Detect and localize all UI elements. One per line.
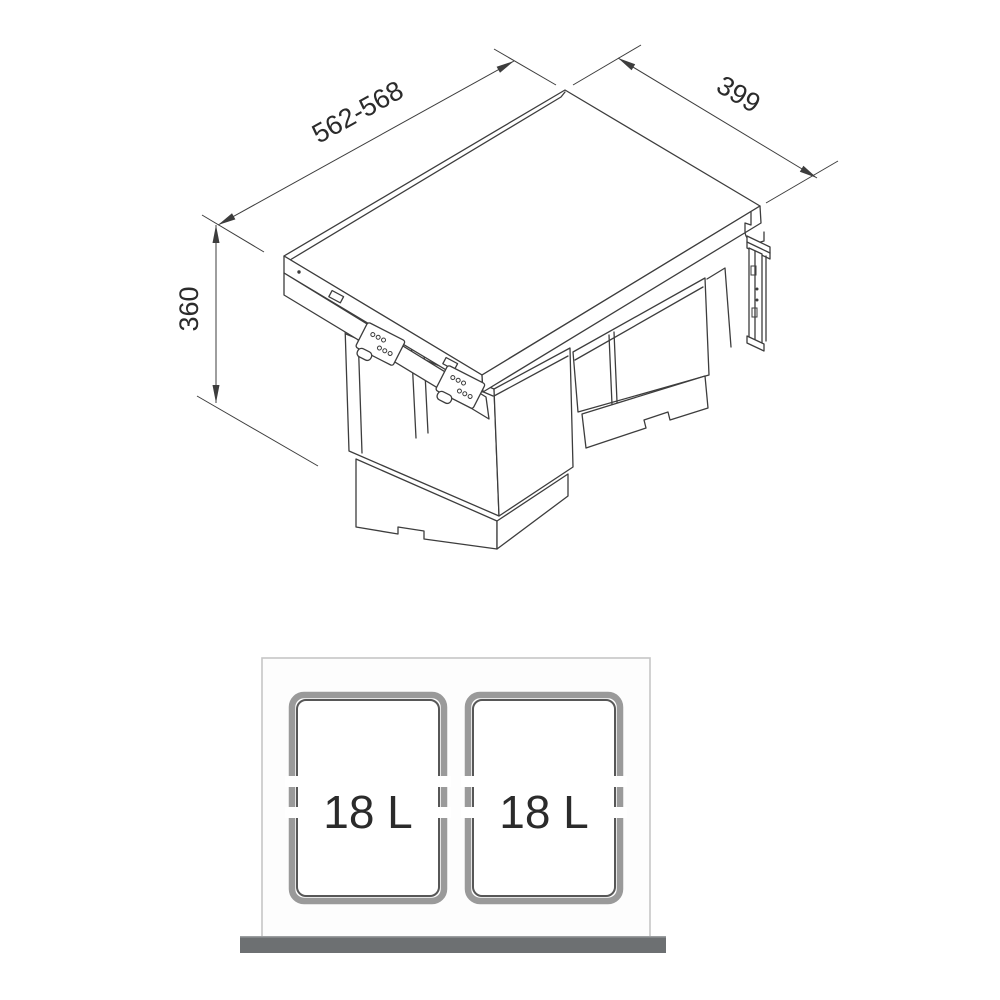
product-dimension-diagram: 562-568 399 360	[0, 0, 1000, 1000]
bin-side-notch	[461, 807, 477, 818]
bracket-hole	[756, 299, 759, 302]
arrowhead	[618, 58, 635, 70]
bin-right-topview: 18 L	[461, 695, 627, 901]
bin-side-notch	[435, 807, 451, 818]
arrowhead	[218, 213, 235, 225]
extension-line	[197, 396, 318, 466]
height-dimension-label: 360	[174, 286, 204, 331]
arrowhead	[497, 61, 514, 73]
front-bar	[240, 936, 666, 953]
bin-side-notch	[285, 807, 301, 818]
bracket-hole	[756, 288, 759, 291]
arrowhead	[213, 385, 220, 403]
depth-dimension-label: 399	[712, 70, 766, 119]
bin-side-notch	[285, 776, 301, 787]
page-root: 562-568 399 360	[0, 0, 1000, 1000]
bin-left-topview: 18 L	[285, 695, 451, 901]
top-view: 18 L 18 L	[240, 658, 666, 953]
bin-side-notch	[435, 776, 451, 787]
extension-line	[202, 215, 264, 252]
bin-capacity-label: 18 L	[323, 786, 413, 838]
bin-side-notch	[461, 776, 477, 787]
arrowhead	[213, 225, 220, 243]
extension-line	[766, 161, 838, 203]
width-dimension-label: 562-568	[307, 75, 408, 149]
front-bar-body	[240, 936, 666, 953]
side-bracket	[745, 212, 770, 351]
bin-capacity-label: 18 L	[499, 786, 589, 838]
bin-side-notch	[611, 776, 627, 787]
lid-screw-dot	[297, 270, 300, 273]
right-bin-back-edge	[707, 268, 731, 347]
arrowhead	[800, 166, 817, 178]
isometric-view: 562-568 399 360	[174, 45, 838, 549]
bin-side-notch	[611, 807, 627, 818]
